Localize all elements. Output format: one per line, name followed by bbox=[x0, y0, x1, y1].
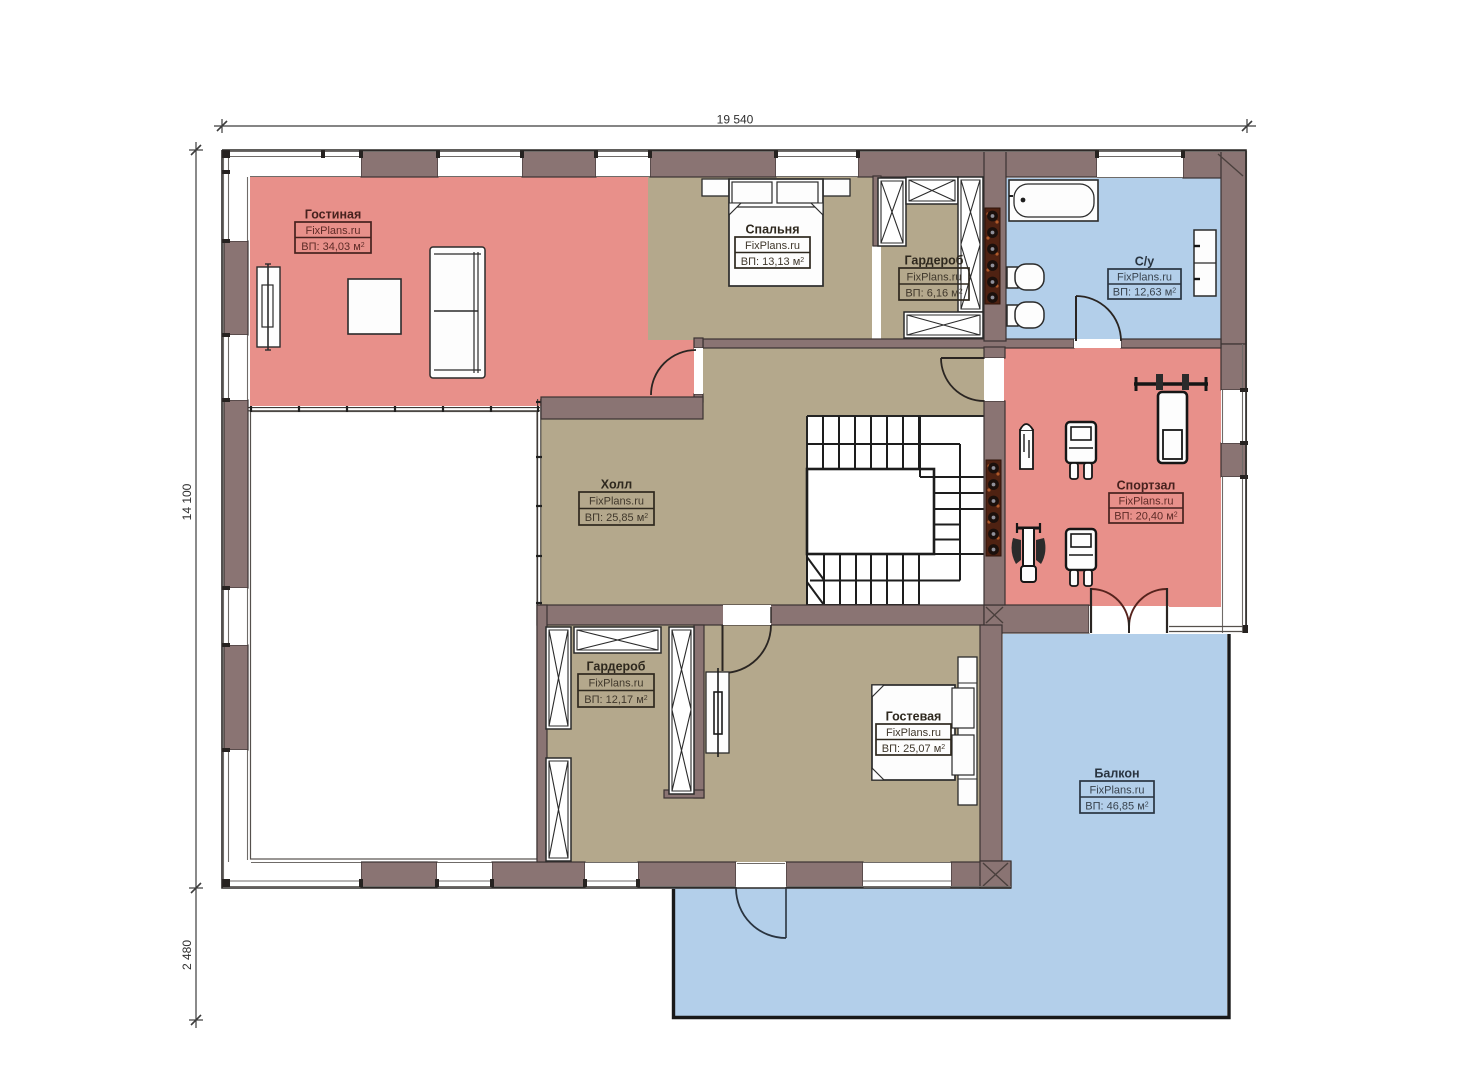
svg-text:FixPlans.ru: FixPlans.ru bbox=[588, 678, 643, 690]
svg-text:ВП: 25,07 м2: ВП: 25,07 м2 bbox=[882, 743, 946, 755]
svg-text:FixPlans.ru: FixPlans.ru bbox=[1118, 495, 1173, 507]
svg-text:FixPlans.ru: FixPlans.ru bbox=[906, 271, 961, 283]
svg-text:Гардероб: Гардероб bbox=[586, 660, 645, 674]
svg-text:ВП: 46,85 м2: ВП: 46,85 м2 bbox=[1085, 800, 1149, 812]
svg-text:ВП: 25,85 м2: ВП: 25,85 м2 bbox=[585, 512, 649, 524]
svg-text:Гостевая: Гостевая bbox=[886, 710, 942, 724]
svg-text:ВП: 6,16 м2: ВП: 6,16 м2 bbox=[905, 287, 962, 299]
svg-text:19 540: 19 540 bbox=[717, 113, 754, 127]
svg-text:2 480: 2 480 bbox=[180, 940, 194, 970]
svg-text:ВП: 12,17 м2: ВП: 12,17 м2 bbox=[584, 694, 648, 706]
svg-text:FixPlans.ru: FixPlans.ru bbox=[1089, 784, 1144, 796]
svg-text:С/у: С/у bbox=[1135, 255, 1155, 269]
svg-text:ВП: 34,03 м2: ВП: 34,03 м2 bbox=[301, 241, 365, 253]
svg-text:Балкон: Балкон bbox=[1094, 767, 1139, 781]
svg-text:Гостиная: Гостиная bbox=[305, 208, 362, 222]
svg-text:FixPlans.ru: FixPlans.ru bbox=[886, 727, 941, 739]
svg-text:ВП: 13,13 м2: ВП: 13,13 м2 bbox=[741, 256, 805, 268]
svg-text:ВП: 20,40 м2: ВП: 20,40 м2 bbox=[1114, 510, 1178, 522]
svg-text:FixPlans.ru: FixPlans.ru bbox=[589, 496, 644, 508]
svg-text:ВП: 12,63 м2: ВП: 12,63 м2 bbox=[1113, 286, 1177, 298]
svg-text:FixPlans.ru: FixPlans.ru bbox=[745, 240, 800, 252]
svg-text:FixPlans.ru: FixPlans.ru bbox=[1117, 271, 1172, 283]
svg-text:Спортзал: Спортзал bbox=[1117, 479, 1176, 493]
svg-text:14 100: 14 100 bbox=[180, 483, 194, 520]
svg-text:FixPlans.ru: FixPlans.ru bbox=[305, 225, 360, 237]
svg-text:Спальня: Спальня bbox=[746, 223, 800, 237]
svg-text:Холл: Холл bbox=[601, 478, 632, 492]
svg-text:Гардероб: Гардероб bbox=[904, 254, 963, 268]
